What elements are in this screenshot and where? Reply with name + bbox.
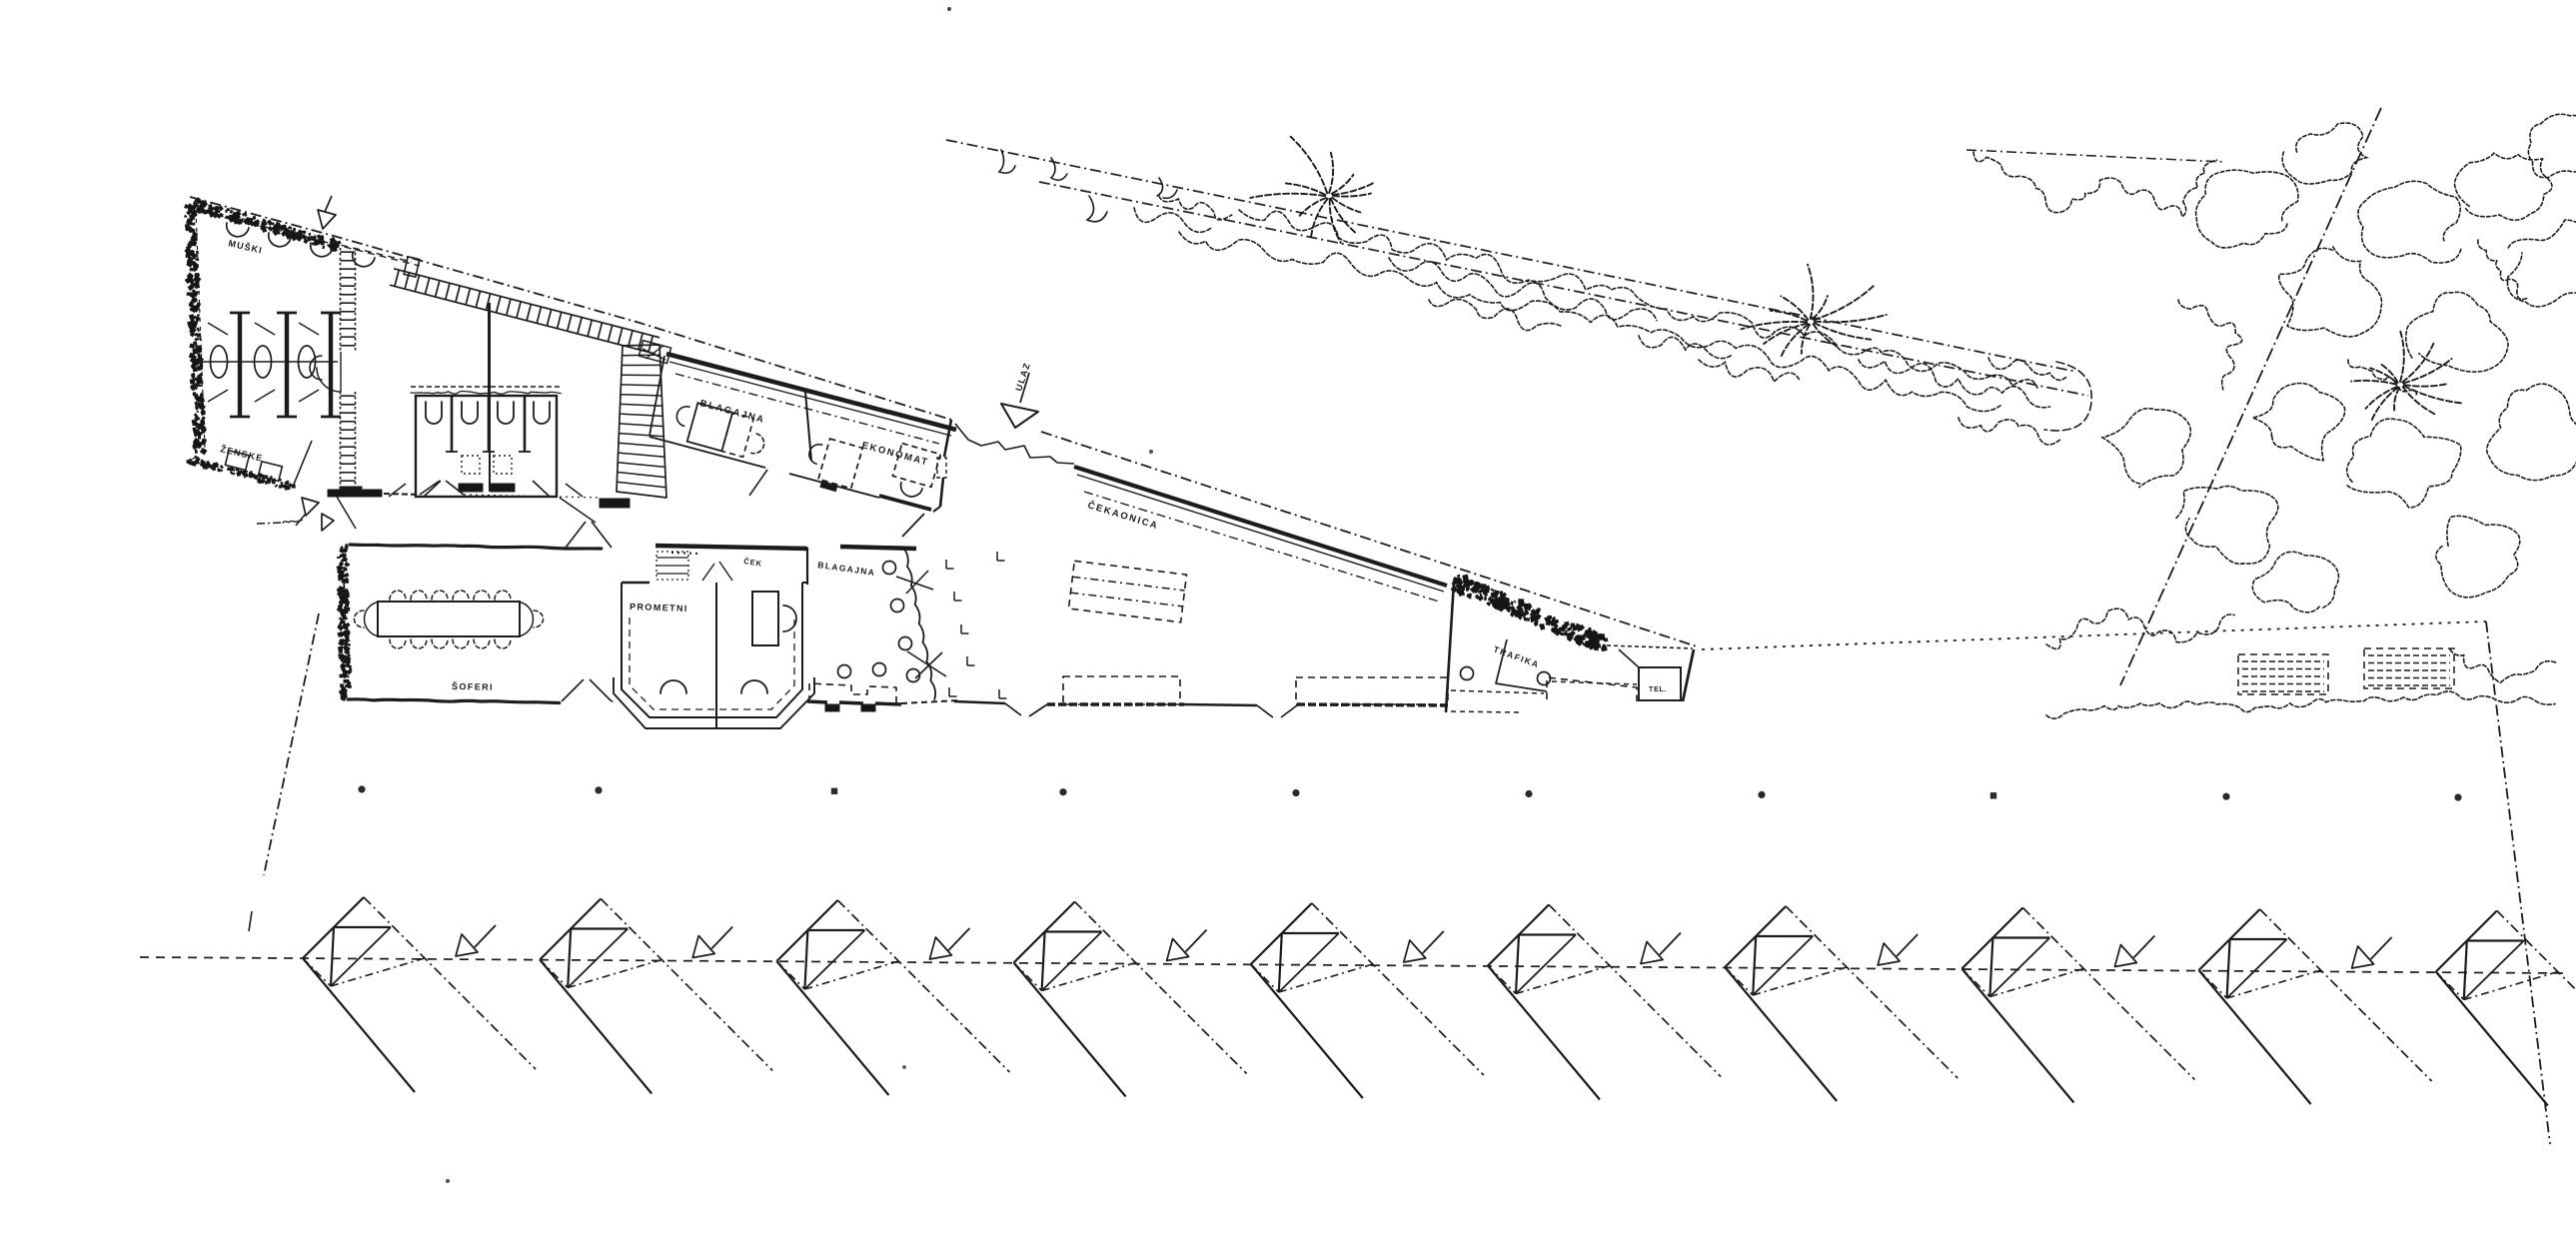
svg-text:PROMETNI: PROMETNI xyxy=(630,602,688,614)
svg-text:TEL.: TEL. xyxy=(1649,686,1667,693)
svg-text:ŠOFERI: ŠOFERI xyxy=(452,680,494,692)
